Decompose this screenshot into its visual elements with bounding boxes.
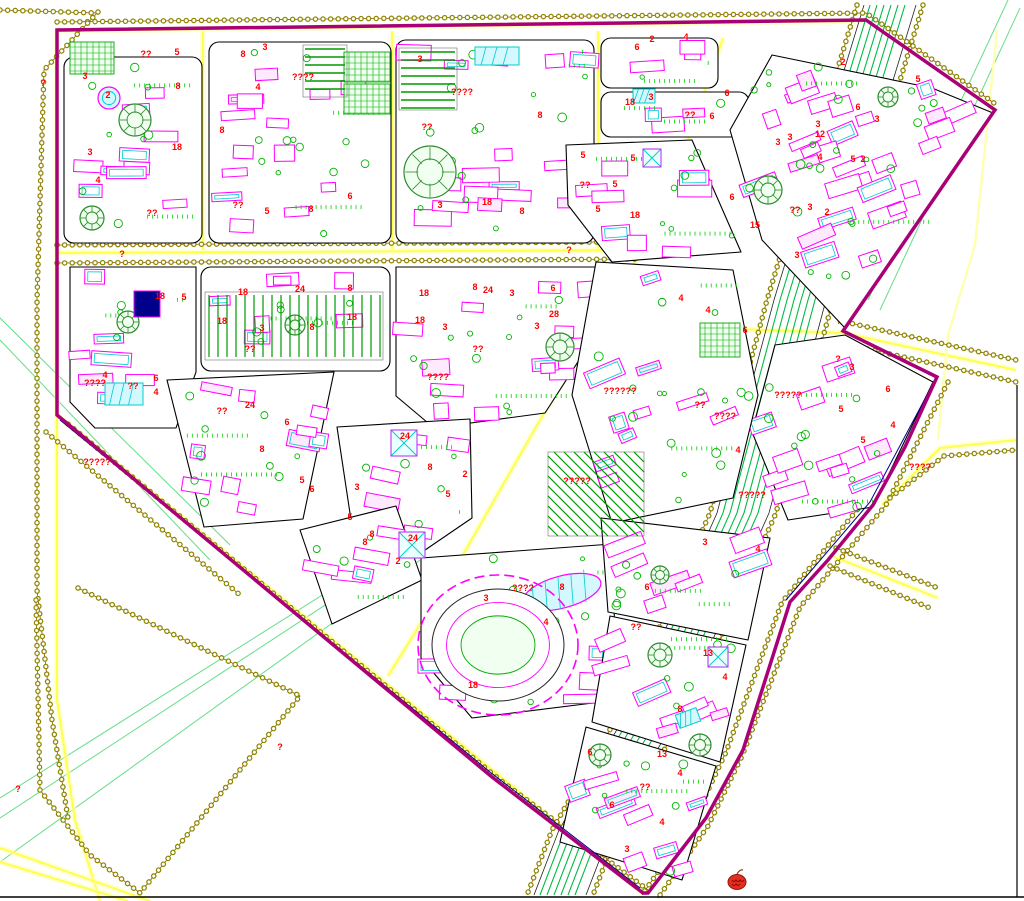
lot-number-label: 8 [347,283,352,293]
lot-number-label: ????? [83,457,111,467]
road-centerline [57,418,100,901]
lot-number-label: 5 [915,74,920,84]
lot-number-label: 24 [295,284,305,294]
lot-number-label: 3 [483,593,488,603]
lot-number-label: 3 [624,844,629,854]
lot-number-label: 24 [245,400,255,410]
road-centerline [0,848,150,901]
lot-number-label: 24 [408,533,418,543]
crosshatch-park [344,84,390,114]
lot-number-label: 18 [217,316,227,326]
lot-number-label: 6 [309,484,314,494]
lot-number-label: ?? [473,344,484,354]
lot-number-label: ?????? [604,386,637,396]
lot-number-label: 6 [709,111,714,121]
lot-number-label: 3 [417,54,422,64]
lot-number-label: ?? [790,205,801,215]
lot-number-label: ? [835,354,841,364]
lot-number-label: 3 [794,250,799,260]
tree-rosette [689,734,711,756]
lot-number-label: 5 [347,512,352,522]
lot-number-label: 5 [612,179,617,189]
lot-number-label: 8 [519,206,524,216]
lot-number-label: 4 [755,544,760,554]
lot-number-label: 4 [543,617,548,627]
red-apple-stamp [728,870,746,890]
lot-number-label: 2 [824,207,829,217]
lot-number-label: 13 [703,648,713,658]
lot-number-label: 18 [468,680,478,690]
lot-number-label: 3 [648,92,653,102]
city-block-r1c4b [601,92,749,137]
lot-number-label: ?? [147,208,158,218]
lot-number-label: 8 [677,704,682,714]
lot-number-label: 5 [264,206,269,216]
water-pool [475,47,519,65]
lot-number-label: 5 [630,153,635,163]
lot-number-label: ?? [631,622,642,632]
lot-number-label: 4 [95,175,100,185]
lot-number-label: 2 [860,154,865,164]
lot-number-label: ?? [128,381,139,391]
lot-number-label: 8 [175,81,180,91]
lot-number-label: 4 [817,152,822,162]
lot-number-label: 3 [849,362,854,372]
lot-number-label: 18 [155,291,165,301]
tree-rosette [285,315,305,335]
lot-number-label: 2 [649,34,654,44]
crosshatch-park [700,323,740,357]
lot-number-label: ???? [292,72,314,82]
lot-number-label: 5 [580,150,585,160]
lot-number-label: ???? [84,378,106,388]
lot-number-label: ?? [695,400,706,410]
city-block-r1c4a [601,38,718,88]
lot-number-label: 5 [850,154,855,164]
lot-number-label: 5 [445,489,450,499]
lot-number-label: 3 [775,137,780,147]
lot-number-label: 3 [534,321,539,331]
tree-rosette [648,643,672,667]
lot-number-label: 4 [153,387,158,397]
city-block-r1c3 [396,40,599,243]
lot-number-label: 3 [259,323,264,333]
lot-number-label: ?? [422,122,433,132]
lot-number-label: 8 [472,282,477,292]
lot-number-label: 18 [238,287,248,297]
lot-number-label: 18 [347,312,357,322]
lot-number-label: 3 [82,71,87,81]
lot-number-label: 3 [87,147,92,157]
lot-number-label: 2 [105,90,110,100]
lot-number-label: ????? [774,390,802,400]
lot-number-label: 8 [259,444,264,454]
lot-number-label: 5 [181,292,186,302]
lot-number-label: 5 [860,435,865,445]
lot-number-label: 4 [890,420,895,430]
lot-number-label: 2 [462,469,467,479]
lot-number-label: 28 [549,309,559,319]
tree-rosette [404,146,456,198]
lot-number-label: 8 [559,582,564,592]
lot-number-label: ???? [714,411,736,421]
lot-number-label: 13 [657,749,667,759]
lot-number-label: ?? [580,180,591,190]
feature-pavilion [643,149,661,167]
tree-rosette [119,104,151,136]
lot-number-label: 5 [838,404,843,414]
crosshatch-park [344,52,390,82]
lot-number-label: 6 [550,283,555,293]
lot-number-label: ? [277,742,283,752]
lot-number-label: 3 [702,537,707,547]
lot-number-label: 6 [644,582,649,592]
lot-number-label: 5 [299,475,304,485]
lot-number-label: 18 [172,142,182,152]
lot-number-label: 3 [815,119,820,129]
lot-number-label: 24 [483,285,493,295]
lot-number-label: 18 [482,197,492,207]
lot-number-label: 18 [415,315,425,325]
lot-number-label: 18 [419,288,429,298]
lot-number-label: 6 [885,384,890,394]
lot-number-label: 6 [609,800,614,810]
lot-number-label: ?? [245,344,256,354]
lot-number-label: 4 [735,445,740,455]
lot-number-label: ???? [451,87,473,97]
crosshatch-park [70,42,114,74]
lot-number-label: 3 [437,200,442,210]
lot-number-label: ???? [512,583,534,593]
lot-number-label: 3 [354,482,359,492]
lot-number-label: ?? [141,49,152,59]
lot-number-label: ???? [909,462,931,472]
lot-number-label: 4 [678,293,683,303]
lot-number-label: 18 [630,210,640,220]
tree-rosette [651,566,669,584]
lot-number-label: ? [40,78,46,88]
lot-number-label: 5 [595,204,600,214]
lot-number-label: 5 [174,47,179,57]
tree-rosette [80,206,104,230]
lot-number-label: 3 [787,132,792,142]
lot-number-label: 8 [219,125,224,135]
lot-number-label: ????? [738,490,766,500]
lot-number-label: ????? [563,476,591,486]
cad-site-plan-sheet: ????????53823184??38????48??586????38531… [0,0,1024,901]
lot-number-label: 2 [395,556,400,566]
lot-number-label: 6 [634,42,639,52]
lot-number-label: 4 [705,305,710,315]
city-block-diag1 [167,372,334,527]
lot-number-label: 3 [807,202,812,212]
lot-number-label: ???? [427,372,449,382]
tree-rosette [878,87,898,107]
lot-number-label: 3 [262,42,267,52]
lot-number-label: 4 [659,817,664,827]
lot-number-label: ?? [640,782,651,792]
city-block-campus [572,262,758,523]
lot-number-label: 6 [855,102,860,112]
lot-number-label: ?? [233,200,244,210]
lot-number-label: 8 [309,322,314,332]
lot-number-label: ? [119,249,125,259]
lot-number-label: 15 [750,220,760,230]
lot-number-label: 6 [347,191,352,201]
lot-number-label: 4 [683,32,688,42]
lot-number-label: 4 [677,768,682,778]
master-plan-drawing: ????????53823184??38????48??586????38531… [0,0,1024,901]
lot-number-label: ?? [685,110,696,120]
lot-number-label: ? [15,784,21,794]
lot-number-label: 8 [240,49,245,59]
lot-number-label: ? [566,245,572,255]
lot-number-label: 8 [362,537,367,547]
lot-number-label: 18 [625,97,635,107]
lot-number-label: 8 [537,110,542,120]
lot-number-label: 2 [840,57,845,67]
lot-number-label: 3 [442,322,447,332]
lot-number-label: 8 [427,462,432,472]
lot-number-label: 6 [587,747,592,757]
lot-number-label: 8 [369,529,374,539]
lot-number-label: 6 [729,192,734,202]
lot-number-label: ?? [217,406,228,416]
lot-number-label: 6 [284,417,289,427]
lot-number-label: 4 [722,672,727,682]
lot-number-label: 3 [509,288,514,298]
lot-number-label: 6 [153,373,158,383]
lot-number-label: 24 [400,431,410,441]
lot-number-label: 6 [724,88,729,98]
lot-number-label: 6 [742,325,747,335]
lot-number-label: 8 [308,204,313,214]
lot-number-label: 3 [874,114,879,124]
lot-number-label: 4 [255,82,260,92]
lot-number-label: 12 [815,129,825,139]
tree-rosette [546,333,574,361]
tree-rosette [754,176,782,204]
